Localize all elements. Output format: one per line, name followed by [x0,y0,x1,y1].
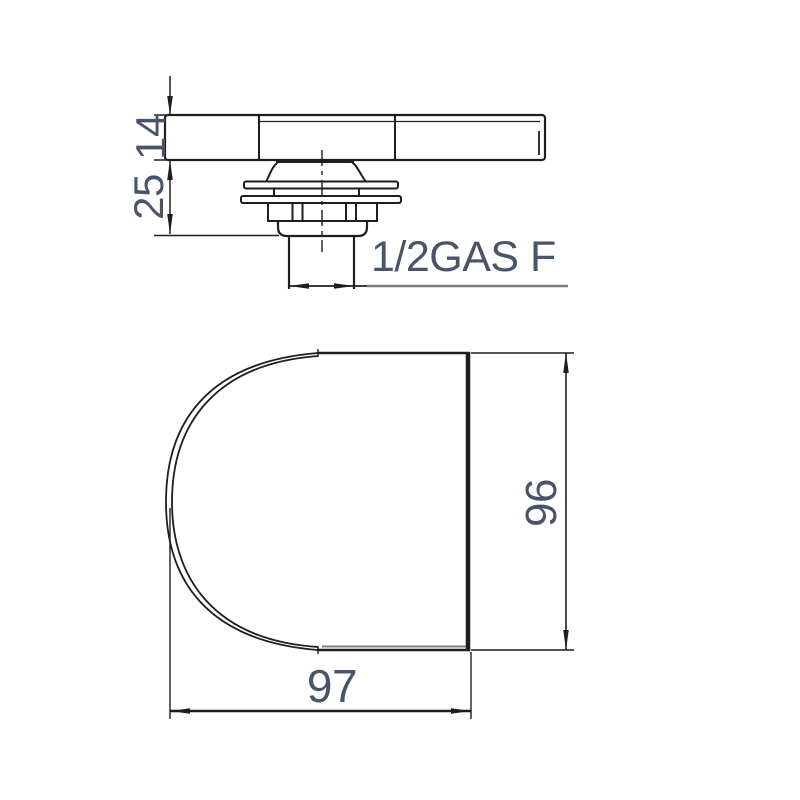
dim-label-plan-height: 96 [520,461,564,545]
arrow-left-thread [289,283,309,289]
dim-label-plan-width: 97 [272,664,392,708]
lower-washer [241,196,401,203]
upper-washer [244,182,398,189]
plan-left-arc-inner [172,356,318,647]
arrow-left-97 [170,708,190,714]
technical-drawing-canvas: 14 25 1/2GAS F 96 97 [0,0,800,800]
thread-label: 1/2GAS F [371,237,571,277]
cone [266,162,366,182]
drawing-linework [0,0,800,800]
arrow-right-thread [334,283,354,289]
plan-left-arc-outer [166,353,318,650]
arrow-down-96 [563,630,569,650]
arrow-right-97 [451,708,471,714]
arrow-up-96 [563,353,569,373]
plan-view [166,349,470,654]
nut-facets [293,203,357,221]
dim-label-stem-height: 25 [129,157,169,237]
